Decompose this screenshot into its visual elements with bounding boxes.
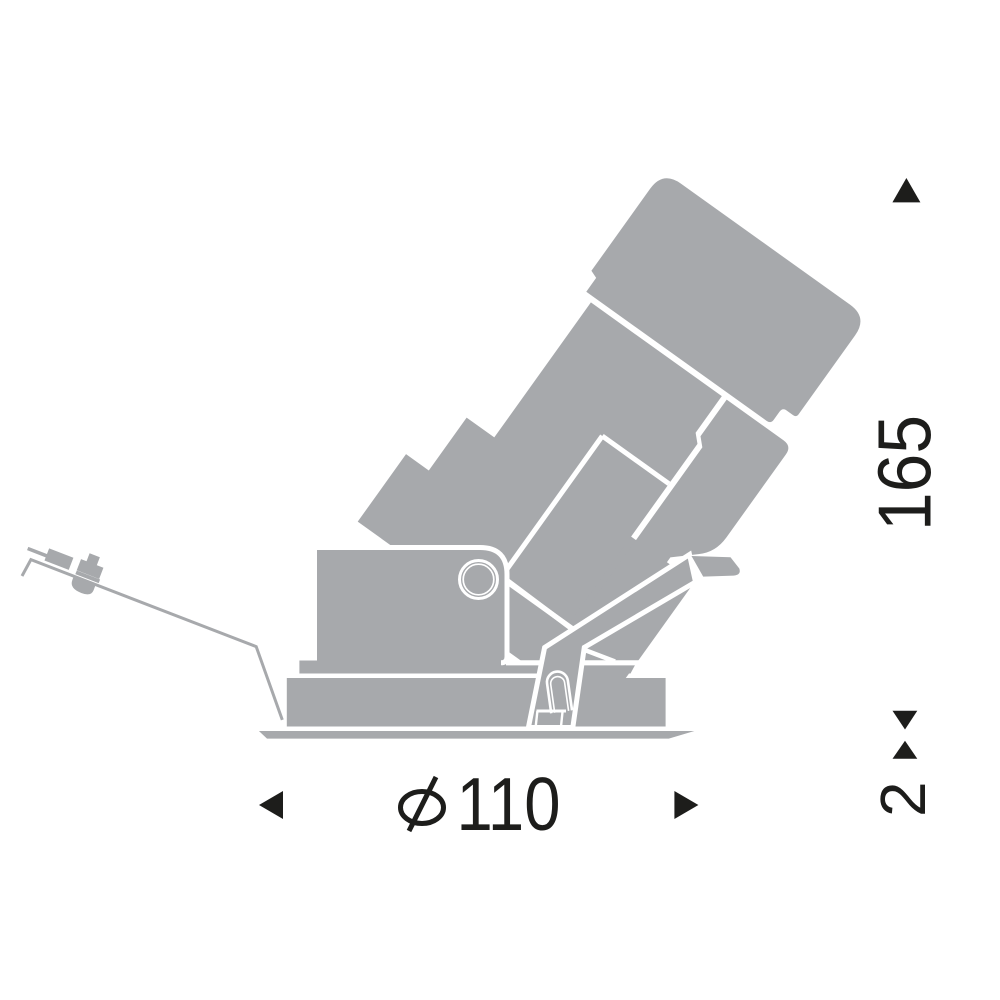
svg-text:110: 110	[457, 762, 561, 846]
svg-text:2: 2	[867, 781, 939, 817]
svg-text:165: 165	[863, 415, 947, 531]
